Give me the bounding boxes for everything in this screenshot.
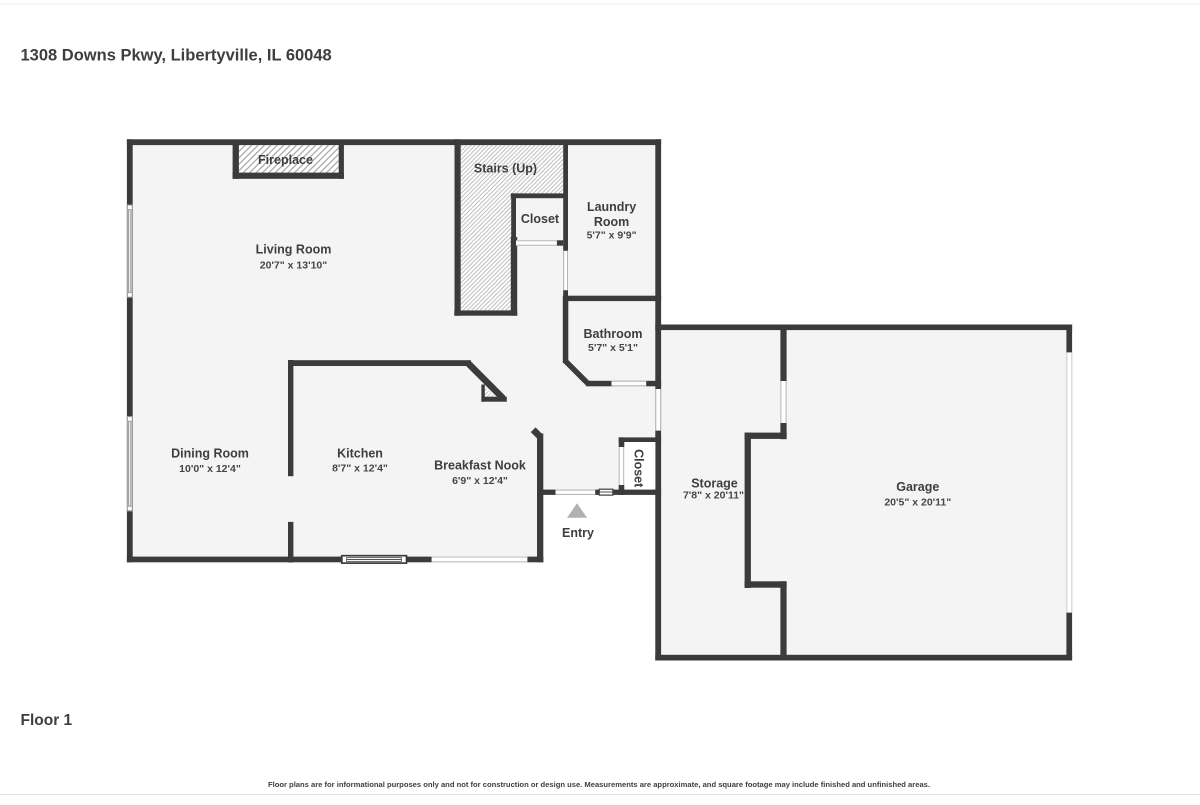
svg-text:7'8" x 20'11": 7'8" x 20'11"	[683, 490, 744, 502]
svg-text:Storage: Storage	[691, 476, 738, 490]
svg-text:Closet: Closet	[521, 212, 560, 226]
svg-text:Floor 1: Floor 1	[21, 712, 73, 729]
svg-text:5'7" x 9'9": 5'7" x 9'9"	[587, 230, 637, 242]
svg-text:Laundry: Laundry	[587, 200, 636, 214]
svg-text:Fireplace: Fireplace	[258, 153, 313, 167]
svg-text:20'7" x 13'10": 20'7" x 13'10"	[260, 260, 328, 272]
svg-text:6'9" x 12'4": 6'9" x 12'4"	[452, 475, 508, 487]
svg-text:20'5" x 20'11": 20'5" x 20'11"	[884, 497, 951, 509]
svg-text:Garage: Garage	[896, 480, 939, 494]
svg-text:Dining Room: Dining Room	[171, 447, 249, 461]
svg-text:10'0" x 12'4": 10'0" x 12'4"	[179, 463, 241, 475]
svg-text:Entry: Entry	[562, 526, 594, 540]
svg-text:Floor plans are for informatio: Floor plans are for informational purpos…	[268, 780, 930, 789]
svg-text:Breakfast Nook: Breakfast Nook	[434, 458, 526, 472]
svg-text:Stairs (Up): Stairs (Up)	[474, 162, 537, 176]
svg-text:Living Room: Living Room	[256, 243, 332, 257]
svg-text:Room: Room	[594, 215, 629, 229]
svg-text:Closet: Closet	[632, 449, 646, 488]
svg-text:5'7" x 5'1": 5'7" x 5'1"	[588, 342, 638, 354]
svg-text:Kitchen: Kitchen	[337, 447, 383, 461]
svg-text:Bathroom: Bathroom	[583, 327, 642, 341]
svg-text:1308 Downs Pkwy, Libertyville,: 1308 Downs Pkwy, Libertyville, IL 60048	[21, 47, 332, 65]
svg-text:8'7" x 12'4": 8'7" x 12'4"	[332, 463, 388, 475]
